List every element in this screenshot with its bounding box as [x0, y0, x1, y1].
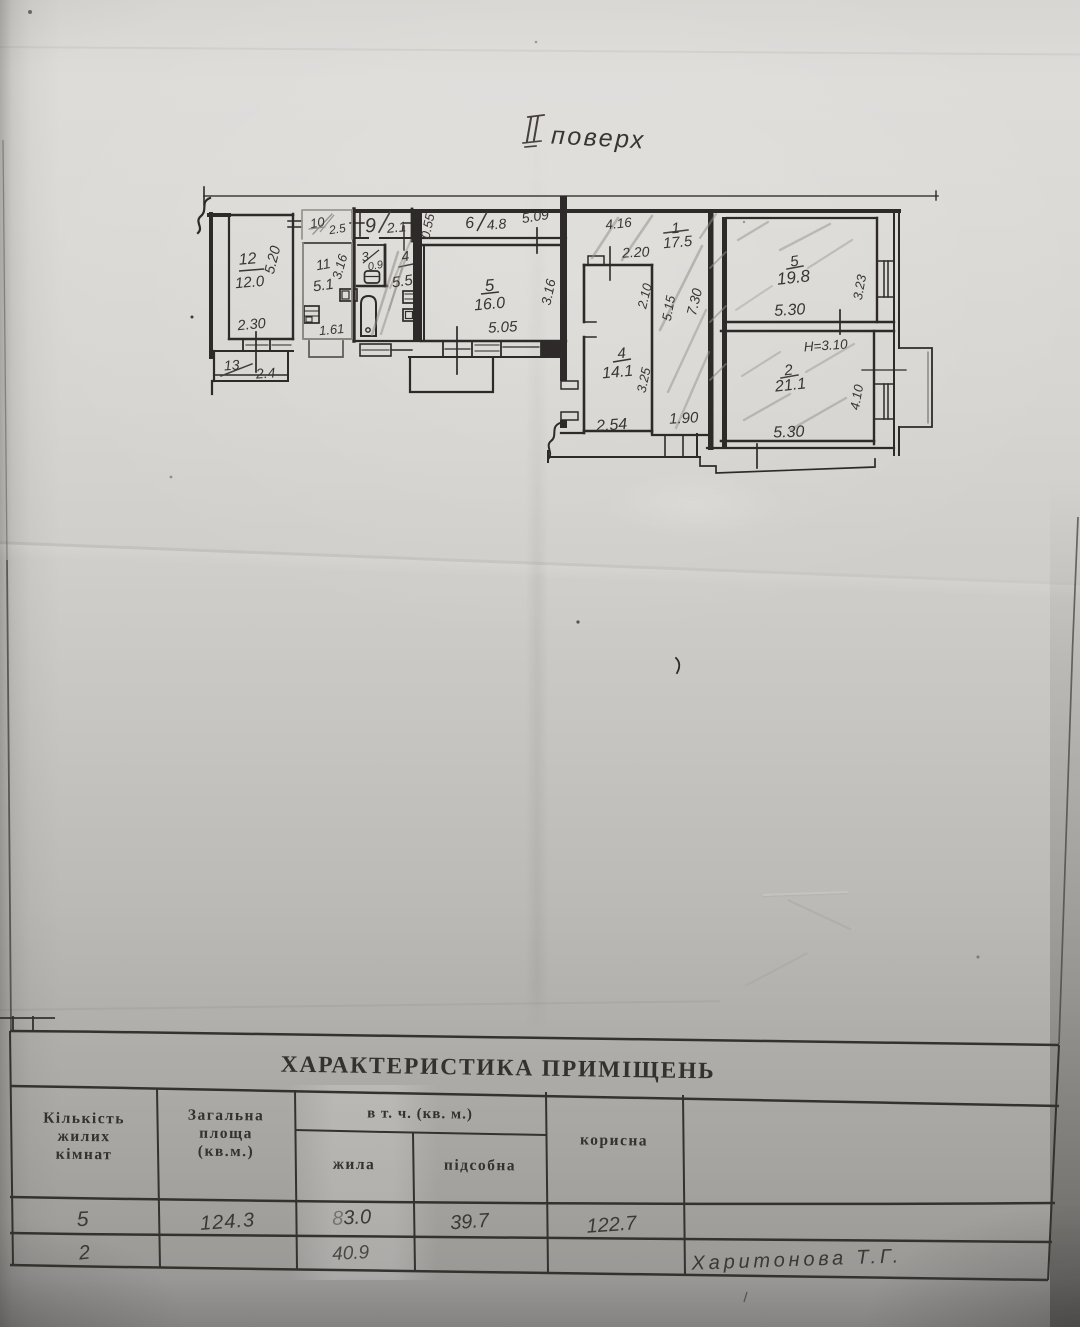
svg-text:(кв.м.): (кв.м.) — [198, 1143, 255, 1161]
svg-text:Н=3.10: Н=3.10 — [803, 336, 848, 354]
svg-text:83.0: 83.0 — [332, 1206, 372, 1230]
svg-text:Харитонова Т.Г.: Харитонова Т.Г. — [690, 1245, 902, 1274]
svg-text:4: 4 — [400, 248, 410, 265]
svg-text:поверх: поверх — [550, 122, 646, 155]
svg-text:3.16: 3.16 — [329, 252, 351, 281]
svg-text:2.30: 2.30 — [236, 316, 267, 334]
svg-text:5.5: 5.5 — [391, 272, 415, 292]
svg-text:0.9: 0.9 — [367, 259, 384, 273]
svg-text:19.8: 19.8 — [776, 266, 811, 288]
svg-text:7.30: 7.30 — [683, 286, 705, 317]
svg-text:2.1: 2.1 — [385, 218, 407, 236]
svg-text:3.23: 3.23 — [850, 273, 869, 301]
svg-text:16.0: 16.0 — [473, 295, 506, 315]
svg-text:4.8: 4.8 — [486, 215, 507, 233]
svg-text:5.05: 5.05 — [488, 318, 519, 337]
svg-text:14.1: 14.1 — [601, 363, 634, 383]
svg-text:5.30: 5.30 — [774, 301, 806, 320]
svg-text:9: 9 — [364, 215, 377, 238]
svg-text:21.1: 21.1 — [773, 375, 807, 395]
svg-text:5.09: 5.09 — [521, 206, 551, 226]
svg-text:5.20: 5.20 — [262, 244, 284, 275]
svg-text:ХАРАКТЕРИСТИКА ПРИМІЩЕНЬ: ХАРАКТЕРИСТИКА ПРИМІЩЕНЬ — [281, 1052, 716, 1085]
svg-text:122.7: 122.7 — [586, 1212, 638, 1237]
svg-text:2: 2 — [77, 1242, 91, 1265]
svg-text:Кількість: Кількість — [43, 1110, 125, 1128]
svg-text:40.9: 40.9 — [332, 1242, 370, 1265]
svg-text:124.3: 124.3 — [199, 1209, 255, 1235]
svg-text:6: 6 — [464, 215, 474, 233]
svg-text:10: 10 — [309, 214, 326, 231]
svg-text:12: 12 — [238, 250, 257, 268]
svg-text:4.10: 4.10 — [847, 383, 866, 411]
svg-text:3.16: 3.16 — [539, 277, 559, 306]
svg-text:2.20: 2.20 — [621, 243, 650, 260]
svg-text:корисна: корисна — [580, 1131, 648, 1149]
svg-text:в т. ч. (кв. м.): в т. ч. (кв. м.) — [367, 1105, 473, 1122]
svg-text:12.0: 12.0 — [234, 273, 265, 293]
svg-text:2.54: 2.54 — [595, 416, 628, 435]
svg-text:жилих: жилих — [57, 1128, 110, 1146]
svg-text:17.5: 17.5 — [662, 233, 693, 253]
svg-text:2.5: 2.5 — [327, 221, 347, 238]
svg-text:Загальна: Загальна — [188, 1107, 265, 1125]
svg-text:жила: жила — [333, 1156, 376, 1173]
svg-text:5.15: 5.15 — [659, 294, 678, 322]
svg-text:2.4: 2.4 — [254, 364, 276, 381]
svg-text:5.30: 5.30 — [773, 423, 805, 441]
svg-text:4.16: 4.16 — [605, 215, 633, 233]
svg-text:13: 13 — [223, 356, 240, 373]
svg-text:1.90: 1.90 — [669, 409, 700, 428]
svg-text:кімнат: кімнат — [56, 1146, 113, 1164]
svg-text:1.61: 1.61 — [318, 321, 345, 338]
svg-text:11: 11 — [315, 255, 332, 273]
svg-text:підсобна: підсобна — [444, 1157, 516, 1175]
svg-text:площа: площа — [199, 1125, 253, 1143]
svg-text:5: 5 — [76, 1208, 89, 1232]
svg-text:39.7: 39.7 — [449, 1210, 490, 1235]
svg-text:5.1: 5.1 — [312, 276, 335, 296]
